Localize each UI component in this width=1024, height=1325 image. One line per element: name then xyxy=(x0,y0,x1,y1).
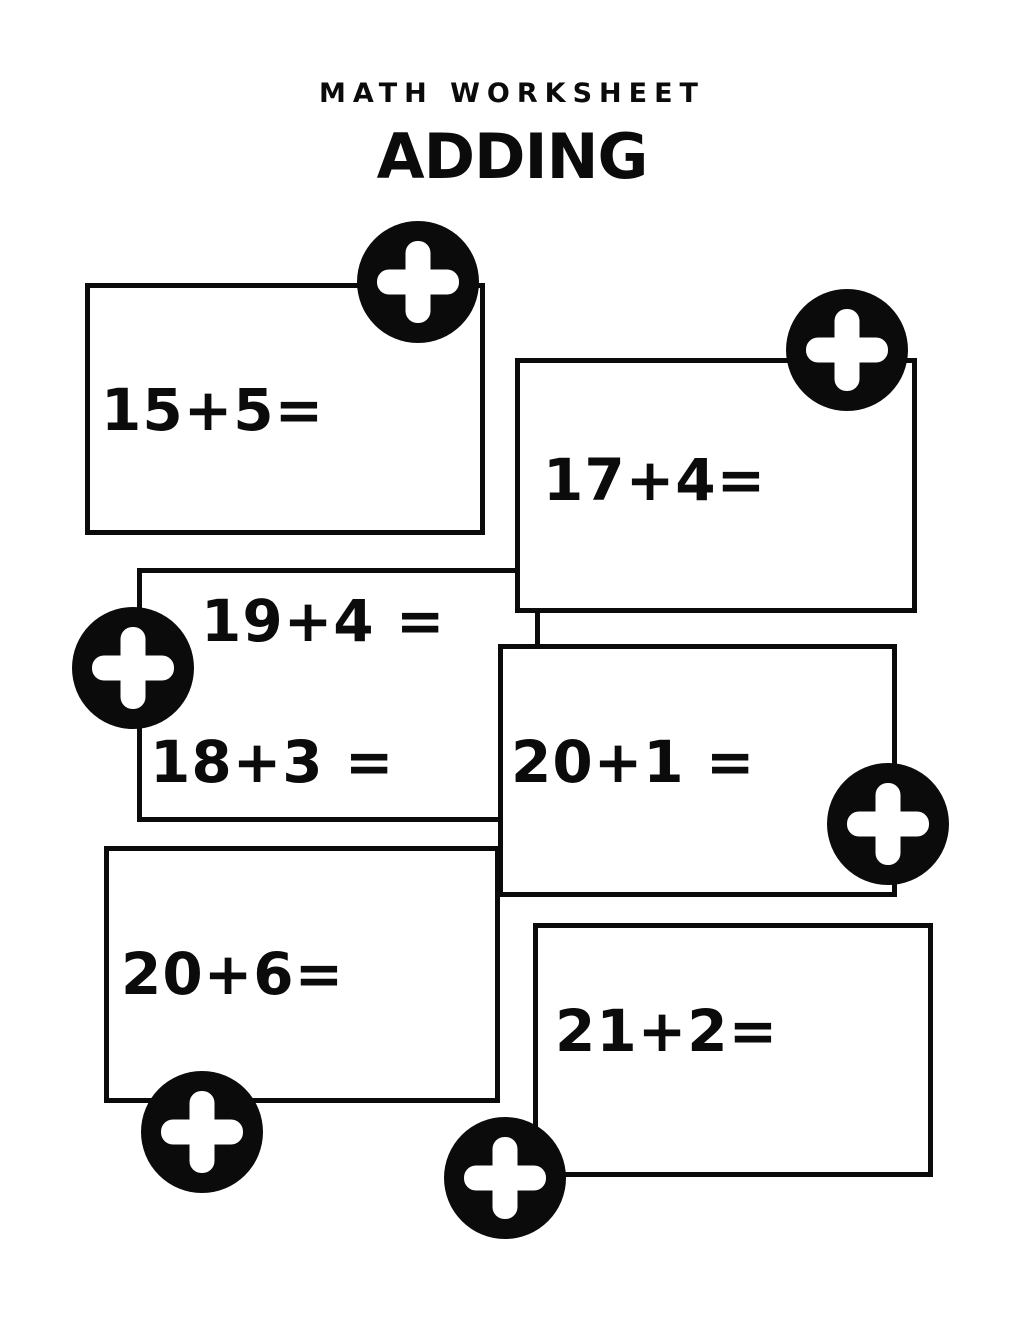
equation-text: 17+4= xyxy=(543,451,766,509)
problem-box-2: 17+4= xyxy=(515,358,917,613)
equation-text: 21+2= xyxy=(555,1002,778,1060)
equation-text: 15+5= xyxy=(101,381,324,439)
worksheet-kicker: MATH WORKSHEET xyxy=(0,78,1024,109)
equation-text: 20+1 = xyxy=(511,733,755,791)
plus-icon xyxy=(357,221,479,343)
problem-box-4: 20+1 = xyxy=(498,644,897,897)
plus-icon xyxy=(72,607,194,729)
problem-box-6: 21+2= xyxy=(533,923,933,1177)
equation-text: 18+3 = xyxy=(150,733,394,791)
equation-text: 19+4 = xyxy=(201,592,445,650)
plus-icon xyxy=(444,1117,566,1239)
plus-icon xyxy=(786,289,908,411)
worksheet-page: MATH WORKSHEET ADDING 15+5= 17+4= xyxy=(0,0,1024,1325)
problem-box-3: 19+4 = 18+3 = xyxy=(137,568,540,822)
equation-text: 20+6= xyxy=(121,945,344,1003)
problem-box-1: 15+5= xyxy=(85,283,485,535)
plus-icon xyxy=(141,1071,263,1193)
problem-box-5: 20+6= xyxy=(104,846,500,1103)
page-title: ADDING xyxy=(0,120,1024,193)
plus-icon xyxy=(827,763,949,885)
